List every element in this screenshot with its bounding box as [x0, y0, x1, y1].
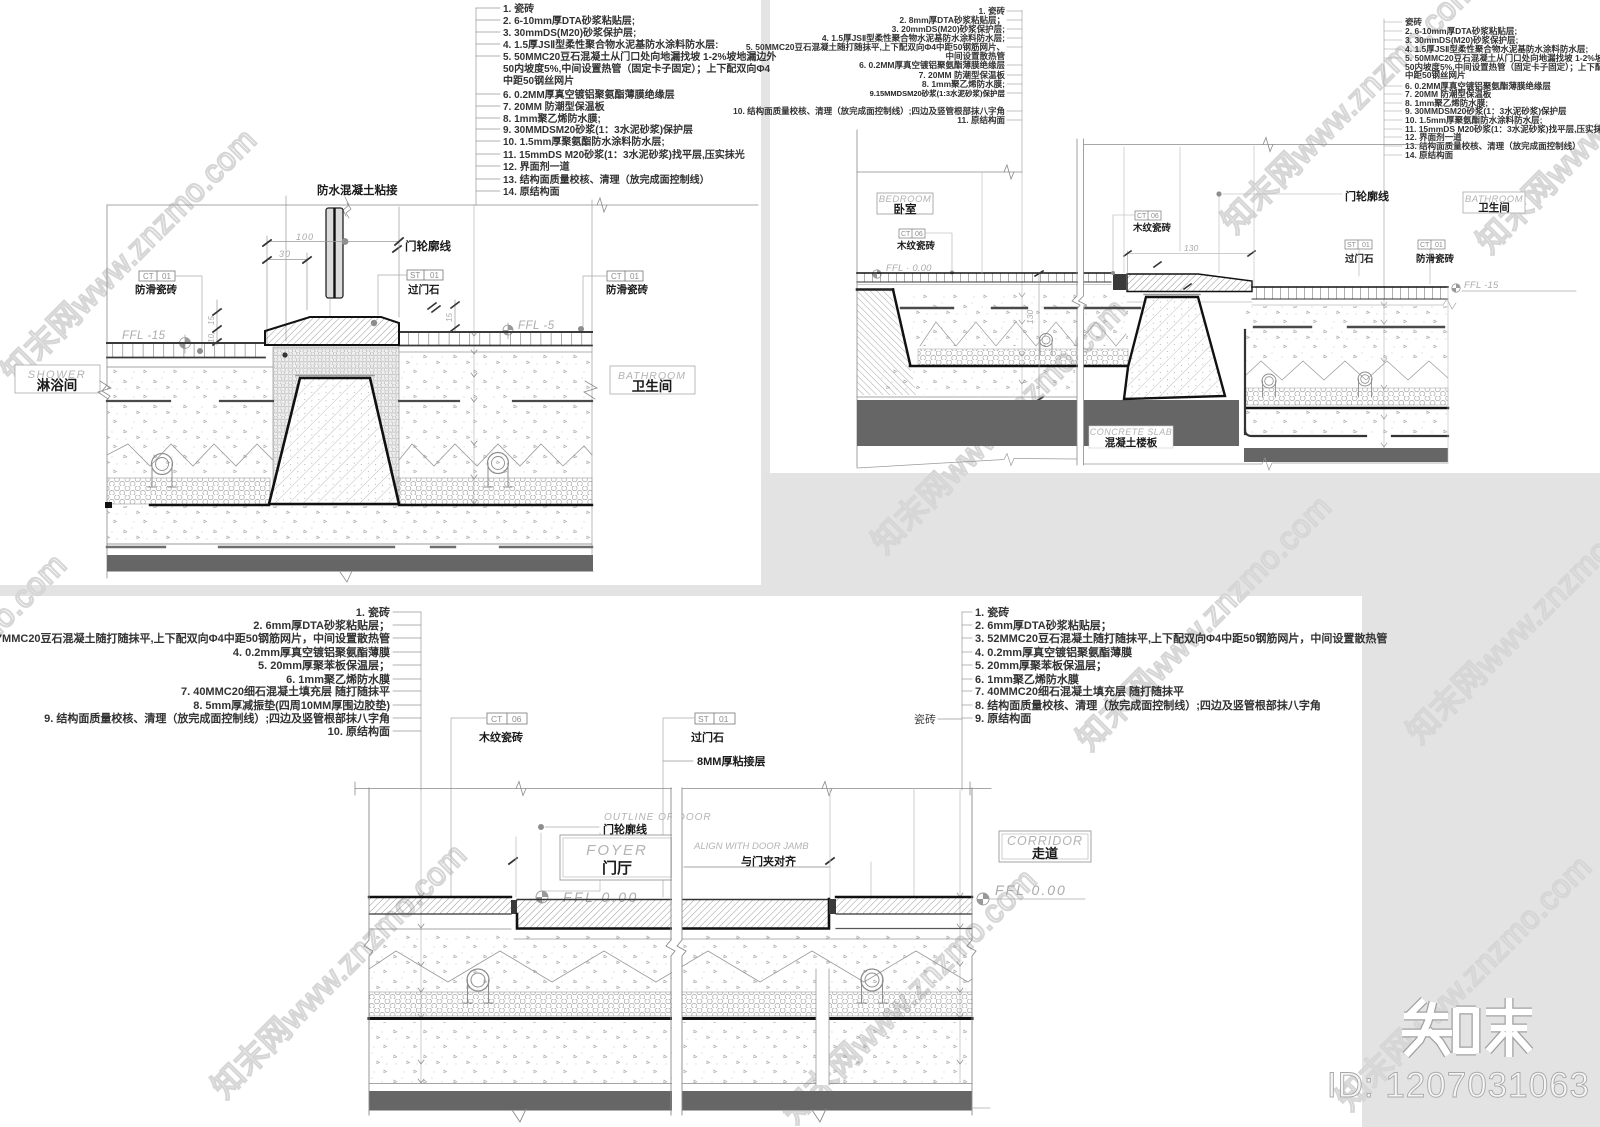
svg-text:8. 1mm聚乙烯防水膜;: 8. 1mm聚乙烯防水膜; — [503, 112, 601, 125]
svg-text:06: 06 — [512, 714, 522, 724]
svg-text:50内坡度5%,中间设置热管（固定卡子固定）；上下配双向Φ4: 50内坡度5%,中间设置热管（固定卡子固定）；上下配双向Φ4 — [503, 62, 771, 75]
svg-text:过门石: 过门石 — [691, 730, 724, 744]
svg-text:1. 瓷砖: 1. 瓷砖 — [975, 605, 1009, 619]
svg-text:防水混凝土粘接: 防水混凝土粘接 — [317, 183, 398, 197]
svg-text:防滑瓷砖: 防滑瓷砖 — [606, 283, 648, 296]
svg-text:淋浴间: 淋浴间 — [37, 377, 78, 393]
svg-text:14. 原结构面: 14. 原结构面 — [1405, 150, 1454, 160]
svg-text:卫生间: 卫生间 — [1478, 201, 1510, 214]
svg-text:7. 20MM 防潮型保温板: 7. 20MM 防潮型保温板 — [503, 100, 606, 113]
svg-text:1. 瓷砖: 1. 瓷砖 — [503, 2, 534, 15]
svg-text:门厅: 门厅 — [602, 859, 632, 877]
svg-text:瓷砖: 瓷砖 — [914, 712, 936, 726]
svg-text:01: 01 — [162, 272, 171, 281]
svg-text:ST: ST — [698, 714, 709, 724]
svg-text:01: 01 — [1362, 242, 1370, 249]
svg-text:10. 1.5mm厚聚氨酯防水涂料防水层;: 10. 1.5mm厚聚氨酯防水涂料防水层; — [503, 135, 665, 148]
svg-text:9. 原结构面: 9. 原结构面 — [975, 711, 1031, 725]
svg-text:过门石: 过门石 — [1345, 253, 1374, 265]
svg-text:木纹瓷砖: 木纹瓷砖 — [478, 730, 523, 744]
svg-text:3. 30mmDS(M20)砂浆保护层;: 3. 30mmDS(M20)砂浆保护层; — [503, 26, 636, 39]
svg-text:木纹瓷砖: 木纹瓷砖 — [1132, 222, 1172, 234]
svg-text:4. 0.2mm厚真空镀铝聚氨酯薄膜: 4. 0.2mm厚真空镀铝聚氨酯薄膜 — [975, 645, 1132, 659]
svg-text:1. 瓷砖: 1. 瓷砖 — [356, 605, 390, 619]
svg-text:10,: 10, — [207, 332, 216, 343]
svg-text:7. 40MMC20细石混凝土填充层 随打随抹平: 7. 40MMC20细石混凝土填充层 随打随抹平 — [181, 684, 390, 698]
svg-text:13. 结构面质量校核、清理（放完成面控制线）: 13. 结构面质量校核、清理（放完成面控制线） — [503, 173, 710, 186]
svg-text:10. 原结构面: 10. 原结构面 — [328, 724, 390, 738]
svg-text:11. 原结构面: 11. 原结构面 — [957, 115, 1005, 125]
svg-text:防滑瓷砖: 防滑瓷砖 — [135, 283, 177, 296]
svg-text:过门石: 过门石 — [408, 283, 440, 296]
svg-text:木纹瓷砖: 木纹瓷砖 — [896, 240, 936, 252]
svg-text:门轮廓线: 门轮廓线 — [603, 822, 647, 836]
svg-text:9. 30MMDSM20砂浆(1：3水泥砂浆)保护层: 9. 30MMDSM20砂浆(1：3水泥砂浆)保护层 — [503, 123, 693, 136]
svg-text:CONCRETE SLAB: CONCRETE SLAB — [1090, 427, 1173, 437]
svg-text:14. 原结构面: 14. 原结构面 — [503, 185, 560, 198]
svg-text:01: 01 — [1435, 242, 1443, 249]
svg-text:6. 0.2MM厚真空镀铝聚氨酯薄膜绝缘层: 6. 0.2MM厚真空镀铝聚氨酯薄膜绝缘层 — [859, 60, 1005, 70]
svg-text:ST: ST — [1347, 242, 1357, 249]
svg-text:走道: 走道 — [1032, 846, 1058, 861]
svg-text:7. 40MMC20细石混凝土填充层 随打随抹平: 7. 40MMC20细石混凝土填充层 随打随抹平 — [975, 684, 1184, 698]
svg-text:8. 结构面质量校核、清理（放完成面控制线）;四边及竖管根部: 8. 结构面质量校核、清理（放完成面控制线）;四边及竖管根部抹八字角 — [975, 698, 1321, 712]
svg-text:ID: 1207031063: ID: 1207031063 — [1327, 1066, 1590, 1105]
svg-text:与门夹对齐: 与门夹对齐 — [741, 854, 797, 868]
svg-text:8. 1mm聚乙烯防水膜;: 8. 1mm聚乙烯防水膜; — [922, 79, 1005, 89]
svg-text:CT: CT — [1420, 242, 1430, 249]
svg-text:3. 47MMC20豆石混凝土随打随抹平,上下配双向Φ4中距: 3. 47MMC20豆石混凝土随打随抹平,上下配双向Φ4中距50钢筋网片，中间设… — [0, 631, 390, 645]
svg-text:8. 5mm厚减振垫(四周10MM厚围边胶垫): 8. 5mm厚减振垫(四周10MM厚围边胶垫) — [193, 698, 390, 712]
svg-text:06: 06 — [915, 231, 923, 238]
svg-text:卫生间: 卫生间 — [632, 378, 673, 394]
svg-text:15: 15 — [207, 316, 216, 325]
svg-text:3. 52MMC20豆石混凝土随打随抹平,上下配双向Φ4中距: 3. 52MMC20豆石混凝土随打随抹平,上下配双向Φ4中距50钢筋网片，中间设… — [975, 631, 1387, 645]
svg-text:CT: CT — [491, 714, 502, 724]
svg-text:01: 01 — [630, 272, 639, 281]
svg-text:6. 1mm聚乙烯防水膜: 6. 1mm聚乙烯防水膜 — [286, 672, 390, 686]
svg-text:CT: CT — [1137, 213, 1147, 220]
svg-text:01: 01 — [719, 714, 729, 724]
svg-text:12. 界面剂一道: 12. 界面剂一道 — [503, 160, 570, 173]
svg-text:门轮廓线: 门轮廓线 — [1345, 189, 1389, 203]
svg-text:01: 01 — [430, 271, 439, 280]
svg-text:8MM厚粘接层: 8MM厚粘接层 — [697, 754, 765, 768]
svg-text:06: 06 — [1151, 213, 1159, 220]
svg-text:4. 1.5厚JSⅡ型柔性聚合物水泥基防水涂料防水层:: 4. 1.5厚JSⅡ型柔性聚合物水泥基防水涂料防水层: — [503, 38, 719, 51]
svg-text:FFL -15: FFL -15 — [1464, 280, 1499, 291]
svg-text:卧室: 卧室 — [894, 202, 917, 216]
svg-text:防滑瓷砖: 防滑瓷砖 — [1416, 253, 1455, 265]
svg-text:CT: CT — [901, 231, 911, 238]
svg-text:OUTLINE OF DOOR: OUTLINE OF DOOR — [604, 812, 712, 823]
svg-text:130: 130 — [1184, 243, 1198, 253]
svg-text:FFL 0.00: FFL 0.00 — [995, 882, 1067, 898]
svg-text:6. 0.2MM厚真空镀铝聚氨酯薄膜绝缘层: 6. 0.2MM厚真空镀铝聚氨酯薄膜绝缘层 — [503, 88, 675, 101]
svg-text:ALIGN WITH DOOR JAMB: ALIGN WITH DOOR JAMB — [693, 841, 809, 852]
svg-text:15: 15 — [445, 313, 454, 322]
svg-text:2. 6mm厚DTA砂浆粘贴层；: 2. 6mm厚DTA砂浆粘贴层； — [975, 618, 1112, 632]
svg-text:CT: CT — [143, 272, 154, 281]
svg-text:130: 130 — [1025, 310, 1035, 324]
svg-text:6. 1mm聚乙烯防水膜: 6. 1mm聚乙烯防水膜 — [975, 672, 1079, 686]
svg-text:门轮廓线: 门轮廓线 — [405, 239, 451, 253]
svg-text:FOYER: FOYER — [586, 842, 648, 859]
svg-text:100: 100 — [296, 232, 314, 242]
svg-text:CT: CT — [611, 272, 622, 281]
svg-text:混凝土楼板: 混凝土楼板 — [1105, 436, 1158, 449]
svg-text:9. 结构面质量校核、清理（放完成面控制线）;四边及竖管根部: 9. 结构面质量校核、清理（放完成面控制线）;四边及竖管根部抹八字角 — [44, 711, 390, 725]
svg-text:2. 6mm厚DTA砂浆粘贴层；: 2. 6mm厚DTA砂浆粘贴层； — [253, 618, 390, 632]
svg-text:中距50钢丝网片: 中距50钢丝网片 — [503, 74, 574, 87]
svg-text:4. 0.2mm厚真空镀铝聚氨酯薄膜: 4. 0.2mm厚真空镀铝聚氨酯薄膜 — [233, 645, 390, 659]
svg-text:5. 20mm厚聚苯板保温层；: 5. 20mm厚聚苯板保温层； — [975, 658, 1107, 672]
svg-text:2. 6-10mm厚DTA砂浆粘贴层;: 2. 6-10mm厚DTA砂浆粘贴层; — [503, 14, 635, 27]
svg-text:9.15MMDSM20砂浆(1:3水泥砂浆)保护层: 9.15MMDSM20砂浆(1:3水泥砂浆)保护层 — [870, 88, 1006, 98]
svg-text:FFL -15: FFL -15 — [122, 330, 166, 342]
svg-text:ST: ST — [410, 271, 420, 280]
svg-text:5. 20mm厚聚苯板保温层；: 5. 20mm厚聚苯板保温层； — [258, 658, 390, 672]
svg-text:5. 50MMC20豆石混凝土从门口处向地漏找坡 1-2%坡: 5. 50MMC20豆石混凝土从门口处向地漏找坡 1-2%坡地漏边外 — [503, 50, 776, 63]
svg-text:11. 15mmDS M20砂浆(1：3水泥砂浆)找平层,压: 11. 15mmDS M20砂浆(1：3水泥砂浆)找平层,压实抹光 — [503, 148, 745, 161]
svg-text:30: 30 — [279, 249, 291, 259]
svg-text:中距50钢丝网片: 中距50钢丝网片 — [1405, 70, 1465, 80]
svg-text:FFL -5: FFL -5 — [518, 320, 555, 332]
